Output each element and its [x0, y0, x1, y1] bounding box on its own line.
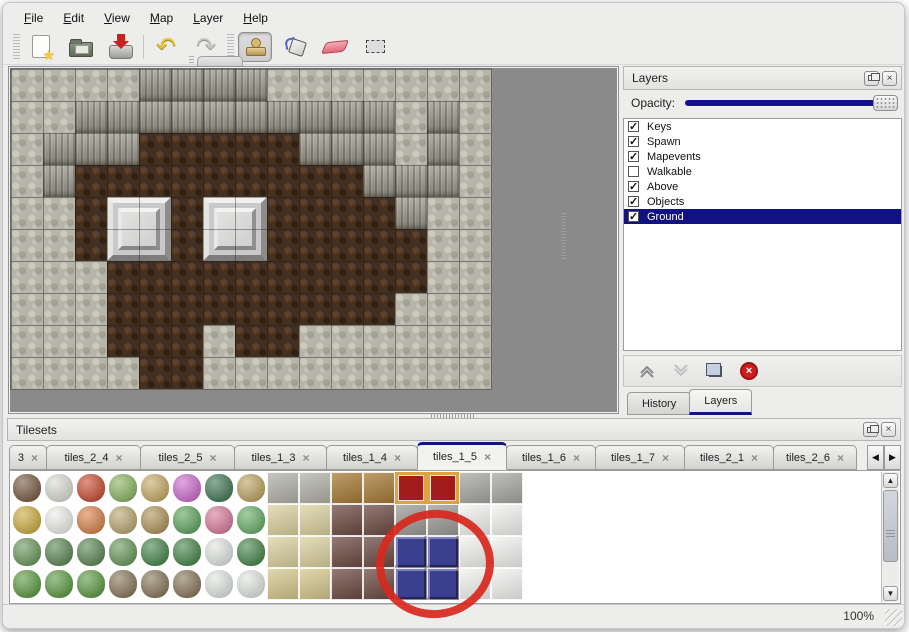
tileset-tiles[interactable] [11, 472, 524, 601]
close-tab-icon[interactable]: × [210, 451, 217, 465]
menu-bar: FileEditViewMapLayerHelp [3, 6, 277, 29]
layers-panel-title: Layers [632, 71, 861, 85]
tileset-tile-whitetable[interactable] [491, 568, 523, 600]
menu-map[interactable]: Map [141, 8, 182, 28]
tileset-tile-palmtree[interactable] [139, 536, 171, 568]
layer-row-walkable[interactable]: Walkable [624, 164, 901, 179]
tileset-tile-twistedtree[interactable] [139, 568, 171, 600]
close-icon: × [887, 73, 893, 84]
tab-label: tiles_2_6 [786, 452, 830, 464]
tileset-tile-trunk[interactable] [139, 472, 171, 504]
eraser-icon [321, 39, 349, 53]
tab-label: tiles_2_1 [700, 452, 744, 464]
dock-bottom-tabs: History Layers [627, 389, 750, 415]
tileset-tab-bar: 3×tiles_2_4×tiles_2_5×tiles_1_3×tiles_1_… [9, 442, 901, 470]
layers-dock-header[interactable]: Layers × [623, 66, 902, 90]
tab-tiles_2_6[interactable]: tiles_2_6× [773, 445, 857, 470]
layer-buttons-row: × [623, 355, 902, 387]
close-tab-icon[interactable]: × [394, 451, 401, 465]
tab-tiles_1_7[interactable]: tiles_1_7× [595, 445, 685, 470]
layer-row-above[interactable]: ✓Above [624, 179, 901, 194]
tileset-tile-twistedtree[interactable] [171, 568, 203, 600]
tileset-tile-whitetable[interactable] [491, 504, 523, 536]
tab-3[interactable]: 3× [9, 445, 47, 470]
vertical-splitter[interactable] [561, 213, 566, 261]
layers-list[interactable]: ✓Keys✓Spawn✓MapeventsWalkable✓Above✓Obje… [623, 118, 902, 351]
layer-visibility-checkbox[interactable]: ✓ [628, 136, 639, 147]
select-icon [366, 40, 385, 53]
duplicate-layer-icon [709, 366, 722, 377]
move-layer-up-icon [639, 364, 655, 378]
tab-label: tiles_1_4 [343, 452, 387, 464]
tileset-tile-sprouts[interactable] [11, 536, 43, 568]
resize-grip[interactable] [885, 609, 902, 626]
move-layer-down-icon [673, 364, 689, 378]
layer-visibility-checkbox[interactable]: ✓ [628, 196, 639, 207]
tileset-tile-tanfloor[interactable] [299, 536, 331, 568]
close-tilesets-button[interactable]: × [881, 422, 896, 437]
float-panel-icon [868, 75, 875, 81]
tileset-tile-bluetable[interactable] [427, 568, 459, 600]
tileset-tile-snowpine[interactable] [235, 568, 267, 600]
tileset-tile-tanfloor2[interactable] [267, 568, 299, 600]
toolbar-grip[interactable] [13, 34, 20, 60]
scrollbar-thumb[interactable] [883, 490, 898, 562]
close-icon: × [886, 424, 892, 435]
tileset-tile-bush[interactable] [75, 536, 107, 568]
tileset-tile-snowpine[interactable] [203, 536, 235, 568]
tileset-tile-driedplant[interactable] [235, 472, 267, 504]
tileset-content[interactable]: ▲ ▼ [9, 470, 901, 604]
undo-button[interactable]: ↶ [149, 32, 183, 62]
panel-mini-tab[interactable] [197, 56, 243, 66]
layer-row-spawn[interactable]: ✓Spawn [624, 134, 901, 149]
tileset-tile-silver[interactable] [491, 472, 523, 504]
tileset-tile-tanfloor[interactable] [267, 536, 299, 568]
tab-tiles_2_1[interactable]: tiles_2_1× [684, 445, 774, 470]
layer-visibility-checkbox[interactable]: ✓ [628, 211, 639, 222]
stamp-button[interactable] [238, 32, 272, 62]
tab-label: tiles_1_7 [611, 452, 655, 464]
tileset-tile-woodtop[interactable] [331, 472, 363, 504]
close-tab-icon[interactable]: × [573, 451, 580, 465]
tileset-tile-snowpine[interactable] [203, 568, 235, 600]
opacity-label: Opacity: [631, 96, 675, 110]
tab-label: 3 [18, 452, 24, 464]
status-bar: 100% [3, 604, 904, 628]
fill-button[interactable] [278, 32, 312, 62]
tileset-tile-stump[interactable] [107, 472, 139, 504]
tileset-tile-palmtree[interactable] [235, 536, 267, 568]
save-button[interactable] [104, 32, 138, 62]
layers-dock: Layers × Opacity: ✓Keys✓Spawn✓MapeventsW… [623, 66, 903, 415]
layer-name: Ground [647, 211, 684, 223]
opacity-slider-handle[interactable] [873, 95, 898, 111]
layer-visibility-checkbox[interactable]: ✓ [628, 121, 639, 132]
tab-label: tiles_2_5 [158, 452, 202, 464]
tab-tiles_2_5[interactable]: tiles_2_5× [140, 445, 235, 470]
tileset-tile-cobble[interactable] [267, 472, 299, 504]
new-file-icon [32, 35, 50, 58]
tileset-tile-leaves[interactable] [139, 504, 171, 536]
toolbar-group [24, 32, 138, 62]
layer-row-keys[interactable]: ✓Keys [624, 119, 901, 134]
opacity-row: Opacity: [623, 93, 901, 113]
app-window: FileEditViewMapLayerHelp ↶↷ Layers × Opa… [2, 2, 905, 629]
tileset-tile-tanfloor[interactable] [267, 504, 299, 536]
layer-visibility-checkbox[interactable]: ✓ [628, 151, 639, 162]
delete-layer-button[interactable]: × [738, 360, 760, 382]
close-tab-icon[interactable]: × [751, 451, 758, 465]
duplicate-layer-button[interactable] [704, 360, 726, 382]
eraser-button[interactable] [318, 32, 352, 62]
tileset-tile-silver[interactable] [459, 472, 491, 504]
tileset-tile-browntable[interactable] [331, 504, 363, 536]
tileset-tile-woodtop[interactable] [363, 472, 395, 504]
stamp-icon [246, 38, 264, 56]
float-panel-button[interactable] [864, 71, 879, 86]
close-tab-icon[interactable]: × [31, 451, 38, 465]
tab-tiles_1_5[interactable]: tiles_1_5× [417, 442, 507, 470]
layer-visibility-checkbox[interactable]: ✓ [628, 181, 639, 192]
tileset-tile-carpet[interactable] [427, 472, 459, 504]
tileset-tile-palmtree[interactable] [171, 536, 203, 568]
toolbar-group [238, 32, 392, 62]
toolbar-separator [143, 35, 144, 59]
tab-layers[interactable]: Layers [689, 389, 752, 415]
tileset-tile-pinkflower[interactable] [171, 472, 203, 504]
float-panel-icon [867, 427, 874, 433]
tileset-tile-palmbush[interactable] [203, 472, 235, 504]
close-panel-button[interactable]: × [882, 71, 897, 86]
tab-tiles_1_4[interactable]: tiles_1_4× [326, 445, 418, 470]
fill-icon [285, 38, 305, 56]
tab-tiles_2_4[interactable]: tiles_2_4× [46, 445, 141, 470]
tileset-tile-lilypad[interactable] [171, 504, 203, 536]
close-tab-icon[interactable]: × [484, 450, 491, 464]
scroll-down-icon[interactable]: ▼ [883, 586, 898, 601]
close-tab-icon[interactable]: × [116, 451, 123, 465]
tileset-tile-redflower[interactable] [75, 472, 107, 504]
scroll-up-icon[interactable]: ▲ [883, 473, 898, 488]
tileset-tile-bluetable[interactable] [427, 536, 459, 568]
toolbar: ↶↷ [3, 29, 904, 65]
tileset-tile-conebush[interactable] [11, 568, 43, 600]
tab-tiles_1_6[interactable]: tiles_1_6× [506, 445, 596, 470]
layer-row-mapevents[interactable]: ✓Mapevents [624, 149, 901, 164]
menu-file[interactable]: File [15, 8, 52, 28]
tileset-tile-bluetable[interactable] [395, 536, 427, 568]
open-folder-icon [69, 42, 93, 57]
delete-layer-icon: × [740, 362, 758, 380]
tilesets-panel-title: Tilesets [16, 423, 860, 437]
tileset-tile-conebush[interactable] [43, 568, 75, 600]
save-icon [109, 45, 133, 59]
scroll-right-icon[interactable]: ▶ [884, 445, 901, 470]
tileset-tile-hay[interactable] [11, 504, 43, 536]
tileset-tile-snowmound[interactable] [43, 504, 75, 536]
tileset-tile-browntable[interactable] [363, 568, 395, 600]
tilesets-dock-header[interactable]: Tilesets × [7, 418, 901, 441]
layer-name: Keys [647, 121, 671, 133]
tileset-tile-lilypad2[interactable] [235, 504, 267, 536]
tileset-tile-bluetable[interactable] [395, 568, 427, 600]
move-layer-up-button[interactable] [636, 360, 658, 382]
tileset-tile-orangeflower[interactable] [75, 504, 107, 536]
close-tab-icon[interactable]: × [837, 451, 844, 465]
tileset-tile-browntable[interactable] [331, 568, 363, 600]
layer-visibility-checkbox[interactable] [628, 166, 639, 177]
tilesets-dock: Tilesets × 3×tiles_2_4×tiles_2_5×tiles_1… [7, 418, 903, 607]
close-tab-icon[interactable]: × [303, 451, 310, 465]
layer-name: Objects [647, 196, 684, 208]
tileset-tile-whitetable[interactable] [459, 568, 491, 600]
open-folder-button[interactable] [64, 32, 98, 62]
select-button[interactable] [358, 32, 392, 62]
tileset-tile-tanfloor[interactable] [299, 504, 331, 536]
tileset-tile-browntable[interactable] [363, 536, 395, 568]
menu-edit[interactable]: Edit [54, 8, 93, 28]
tileset-tile-roses[interactable] [203, 504, 235, 536]
tab-scroll-buttons: ◀▶ [867, 445, 901, 470]
tileset-tile-whitetable[interactable] [459, 536, 491, 568]
tab-label: tiles_2_4 [64, 452, 108, 464]
tileset-tile-snowtree[interactable] [43, 472, 75, 504]
tileset-tile-browntable[interactable] [331, 536, 363, 568]
menu-layer[interactable]: Layer [184, 8, 232, 28]
redo-icon: ↷ [196, 37, 216, 57]
panel-grip[interactable] [189, 56, 194, 65]
map-canvas-panel[interactable] [8, 66, 619, 414]
tileset-tile-conebush[interactable] [75, 568, 107, 600]
layer-row-ground[interactable]: ✓Ground [624, 209, 901, 224]
tileset-tile-graylegs[interactable] [427, 504, 459, 536]
tileset-tile-grasstuft[interactable] [107, 504, 139, 536]
tileset-tile-tanfloor2[interactable] [299, 568, 331, 600]
tileset-tile-browntable[interactable] [363, 504, 395, 536]
float-tilesets-button[interactable] [863, 422, 878, 437]
layer-name: Mapevents [647, 151, 701, 163]
layer-name: Above [647, 181, 678, 193]
tab-tiles_1_3[interactable]: tiles_1_3× [234, 445, 327, 470]
tileset-tile-whitetable[interactable] [459, 504, 491, 536]
undo-icon: ↶ [156, 37, 176, 57]
tileset-tile-carpet[interactable] [395, 472, 427, 504]
move-layer-down-button[interactable] [670, 360, 692, 382]
layer-row-objects[interactable]: ✓Objects [624, 194, 901, 209]
tab-label: tiles_1_5 [433, 451, 477, 463]
tab-label: tiles_1_3 [251, 452, 295, 464]
menu-help[interactable]: Help [234, 8, 277, 28]
layer-name: Spawn [647, 136, 681, 148]
tileset-tile-whitetable[interactable] [491, 536, 523, 568]
map-grid-overlay [11, 69, 491, 389]
tab-label: tiles_1_6 [522, 452, 566, 464]
tileset-tile-sprouts[interactable] [107, 536, 139, 568]
close-tab-icon[interactable]: × [662, 451, 669, 465]
tileset-tile-deadtree[interactable] [11, 472, 43, 504]
menu-view[interactable]: View [95, 8, 139, 28]
tileset-tile-graylegs[interactable] [395, 504, 427, 536]
opacity-slider[interactable] [685, 95, 898, 111]
layer-name: Walkable [647, 166, 692, 178]
tab-history[interactable]: History [627, 392, 691, 415]
tileset-tile-twistedtree[interactable] [107, 568, 139, 600]
new-file-button[interactable] [24, 32, 58, 62]
zoom-level: 100% [843, 609, 874, 623]
tileset-scrollbar[interactable]: ▲ ▼ [881, 472, 899, 602]
scroll-left-icon[interactable]: ◀ [867, 445, 884, 470]
tileset-tile-bush[interactable] [43, 536, 75, 568]
tileset-tile-cobble[interactable] [299, 472, 331, 504]
opacity-slider-track [685, 100, 898, 106]
